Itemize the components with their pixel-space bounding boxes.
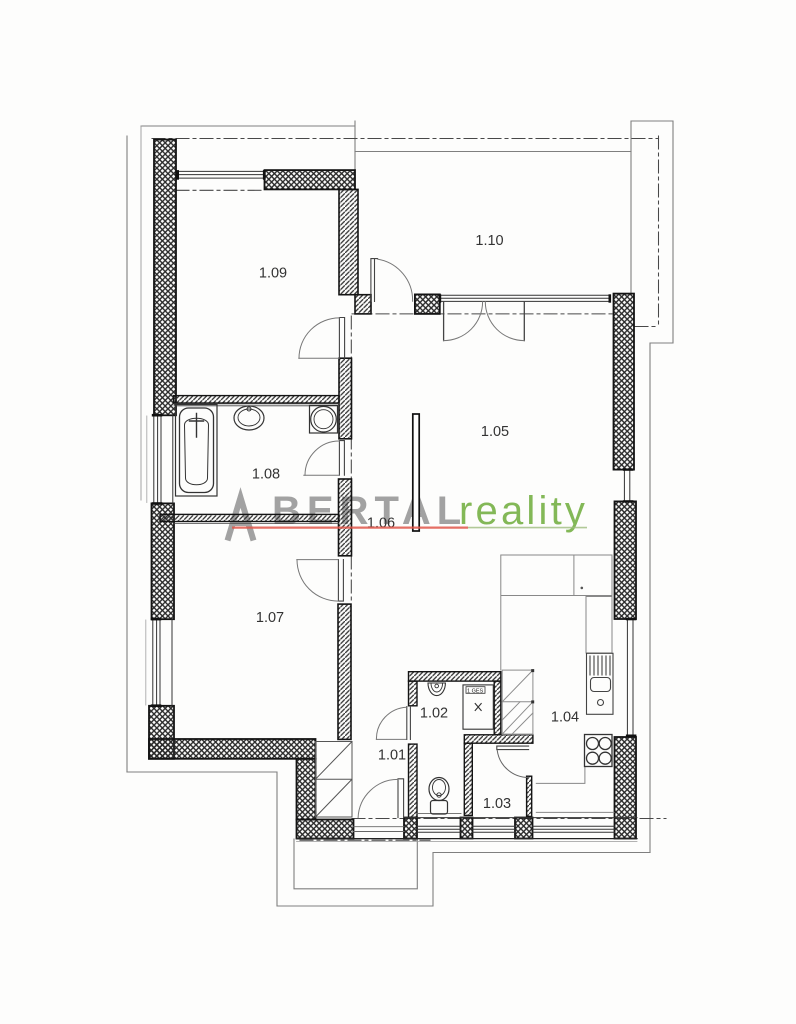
svg-text:1.05: 1.05 <box>481 424 509 440</box>
svg-text:1.06: 1.06 <box>367 516 395 532</box>
svg-text:1.09: 1.09 <box>259 266 287 282</box>
svg-text:1.01: 1.01 <box>378 748 406 764</box>
svg-text:1 GES: 1 GES <box>467 688 484 694</box>
svg-text:1.08: 1.08 <box>252 467 280 483</box>
svg-text:1.10: 1.10 <box>475 233 503 249</box>
svg-text:1.07: 1.07 <box>256 610 284 626</box>
svg-text:reality: reality <box>459 489 588 533</box>
svg-text:1.02: 1.02 <box>420 706 448 722</box>
svg-text:1.03: 1.03 <box>483 796 511 812</box>
svg-text:1.04: 1.04 <box>551 710 579 726</box>
